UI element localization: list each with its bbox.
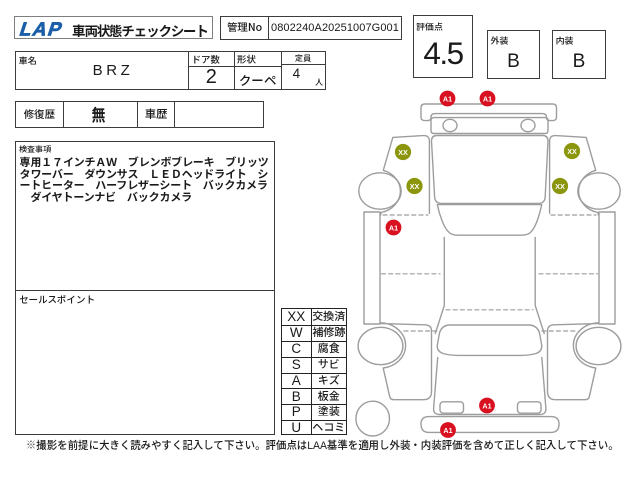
svg-text:LAP: LAP	[17, 19, 66, 39]
svg-text:A1: A1	[443, 94, 452, 103]
svg-text:A1: A1	[482, 401, 491, 410]
svg-text:XX: XX	[567, 147, 577, 156]
svg-text:XX: XX	[555, 182, 565, 191]
svg-text:A1: A1	[483, 94, 492, 103]
svg-text:XX: XX	[398, 148, 408, 157]
svg-text:A1: A1	[443, 426, 452, 435]
svg-text:A1: A1	[389, 223, 398, 232]
svg-text:XX: XX	[410, 182, 420, 191]
